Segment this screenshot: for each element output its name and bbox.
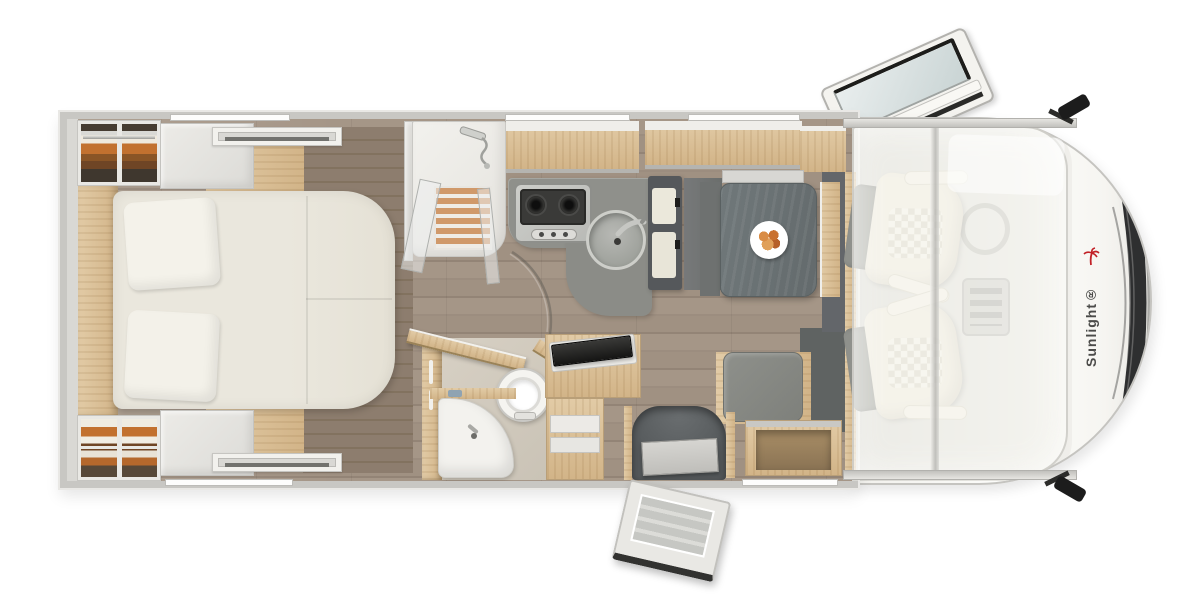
wiper-streak	[1113, 207, 1126, 399]
mirror-head	[1053, 475, 1088, 503]
side-window	[742, 479, 838, 486]
wing-mirror	[1042, 466, 1088, 500]
door-window	[630, 494, 715, 558]
palm-icon	[1081, 247, 1101, 267]
entry-door-open	[612, 479, 732, 582]
roof-rail	[843, 118, 1077, 128]
side-window	[688, 114, 800, 121]
wing-mirror	[1046, 96, 1092, 128]
side-window	[165, 479, 293, 486]
brand-logo: Sunlight®	[1080, 247, 1104, 367]
mirror-head	[1057, 93, 1092, 121]
floorplan-canvas: Sunlight®	[0, 0, 1200, 600]
side-window	[170, 114, 290, 121]
vehicle-wall-frame	[60, 112, 858, 488]
bed-pillow-overlay	[947, 134, 1065, 196]
side-window	[505, 114, 630, 121]
brand-logo-text: Sunlight®	[1083, 267, 1099, 367]
bed-rail	[930, 127, 939, 475]
